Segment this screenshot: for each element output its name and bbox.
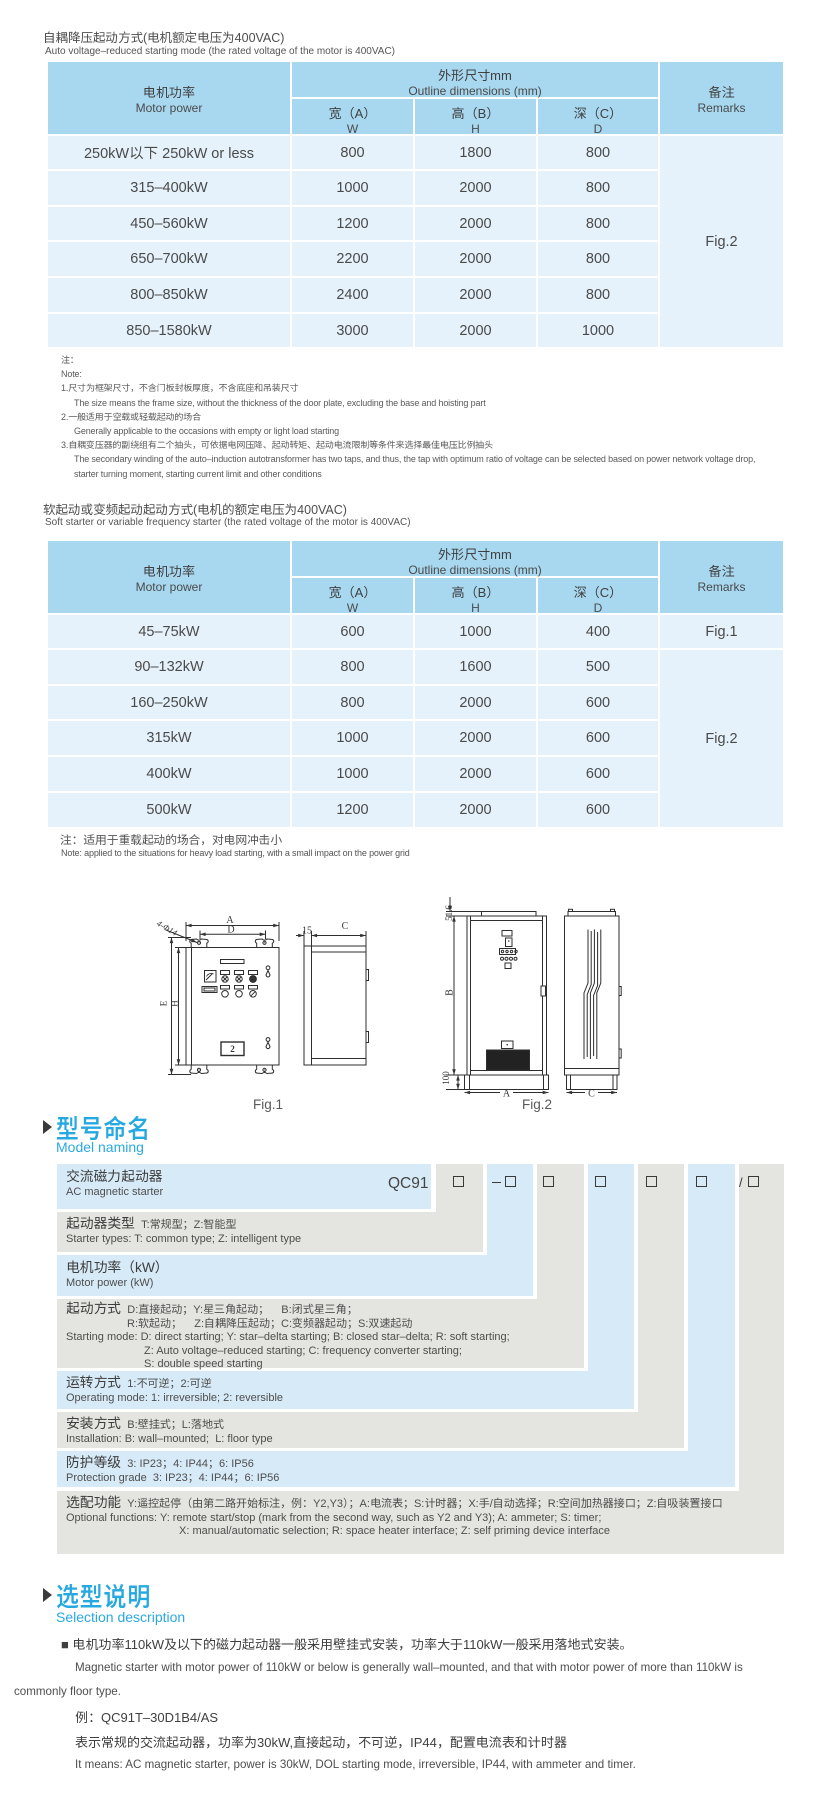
svg-text:C: C: [588, 1089, 595, 1100]
svg-text:2: 2: [230, 1044, 235, 1054]
svg-text:D: D: [227, 925, 234, 936]
svg-text:E: E: [159, 1000, 169, 1006]
svg-text:51.6: 51.6: [444, 905, 454, 921]
svg-text:B: B: [445, 989, 456, 996]
svg-text:C: C: [342, 921, 349, 932]
svg-text:15: 15: [302, 926, 312, 937]
svg-text:100: 100: [441, 1071, 451, 1085]
svg-text:4-Φ14: 4-Φ14: [155, 918, 180, 938]
svg-text:H: H: [170, 1000, 180, 1007]
